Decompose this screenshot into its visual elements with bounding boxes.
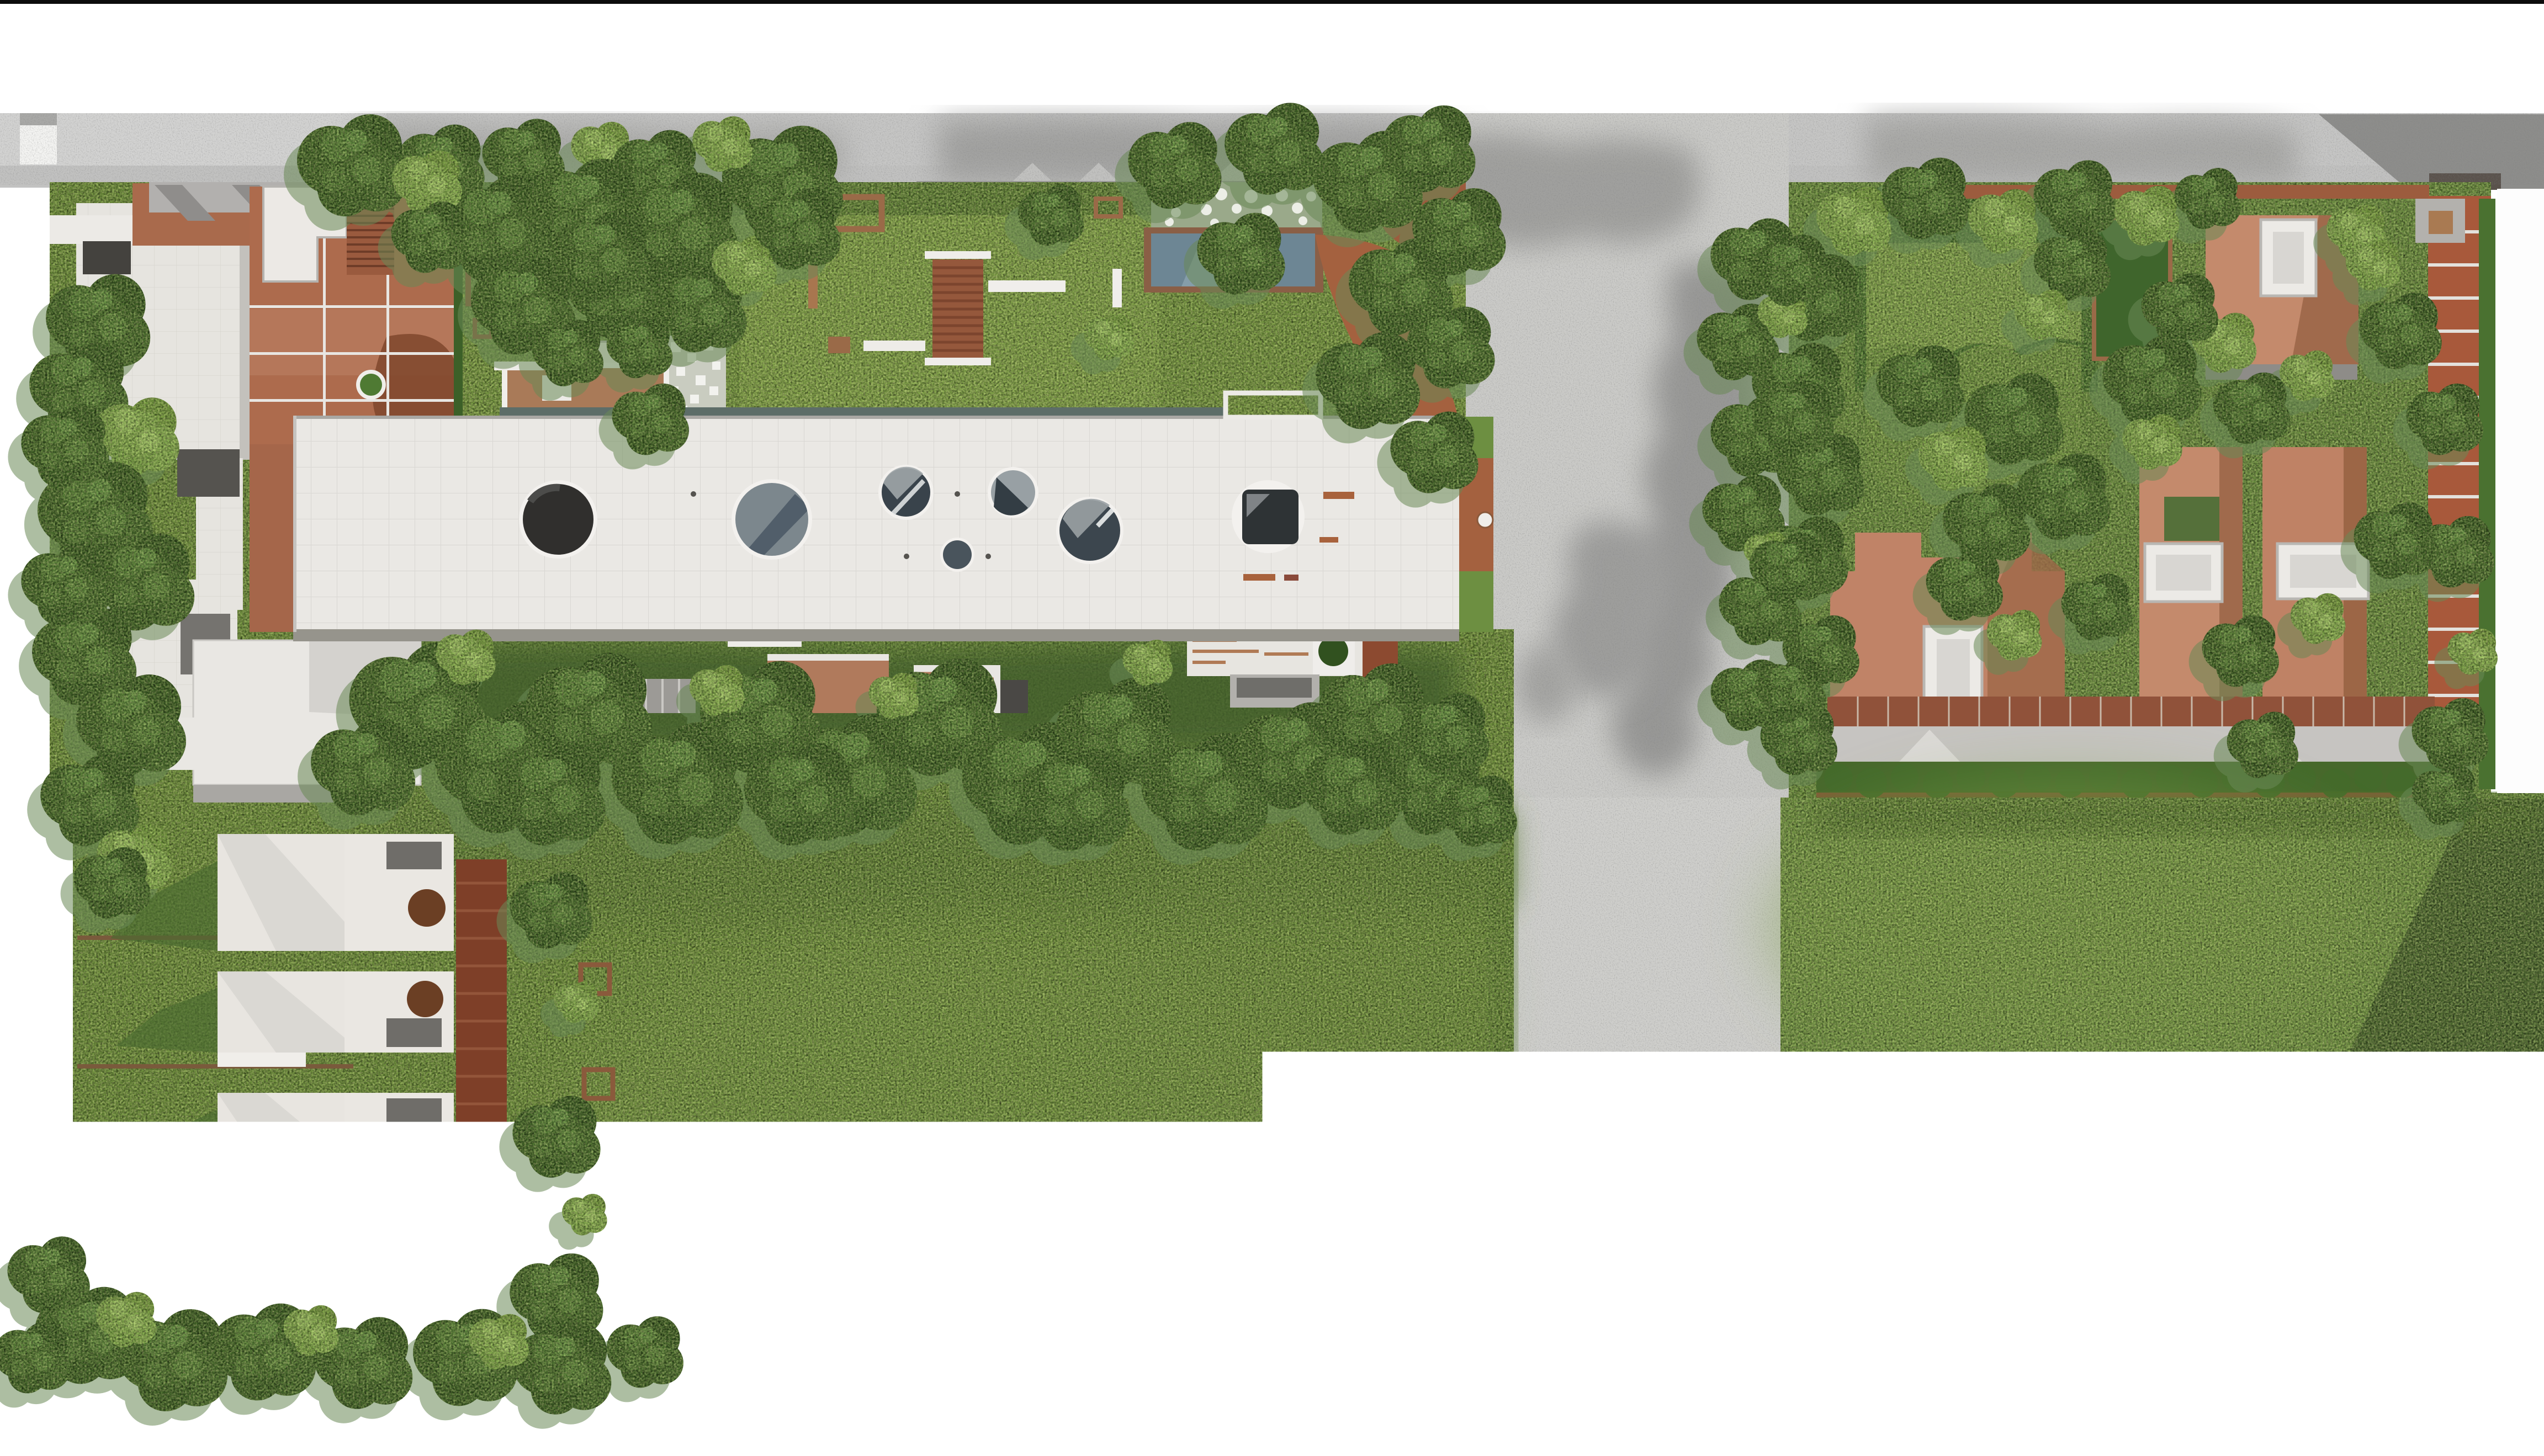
svg-text:Top View: Top View (2143, 1255, 2275, 1293)
